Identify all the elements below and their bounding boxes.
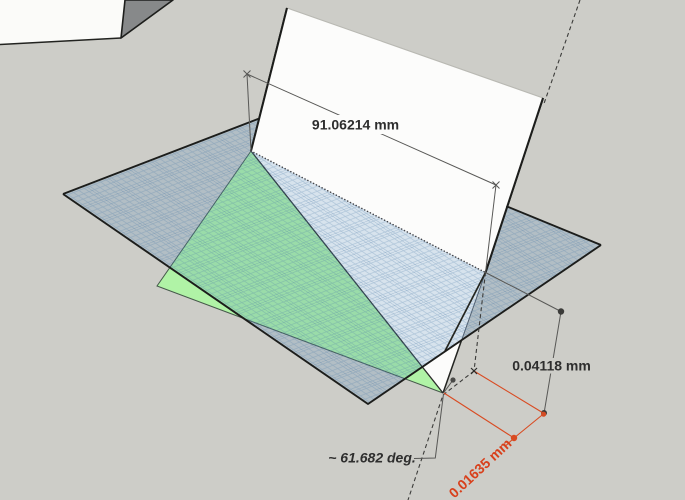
- svg-text:~ 61.682 deg.: ~ 61.682 deg.: [328, 450, 416, 466]
- svg-text:91.06214 mm: 91.06214 mm: [312, 117, 399, 133]
- svg-text:0.04118 mm: 0.04118 mm: [512, 358, 591, 374]
